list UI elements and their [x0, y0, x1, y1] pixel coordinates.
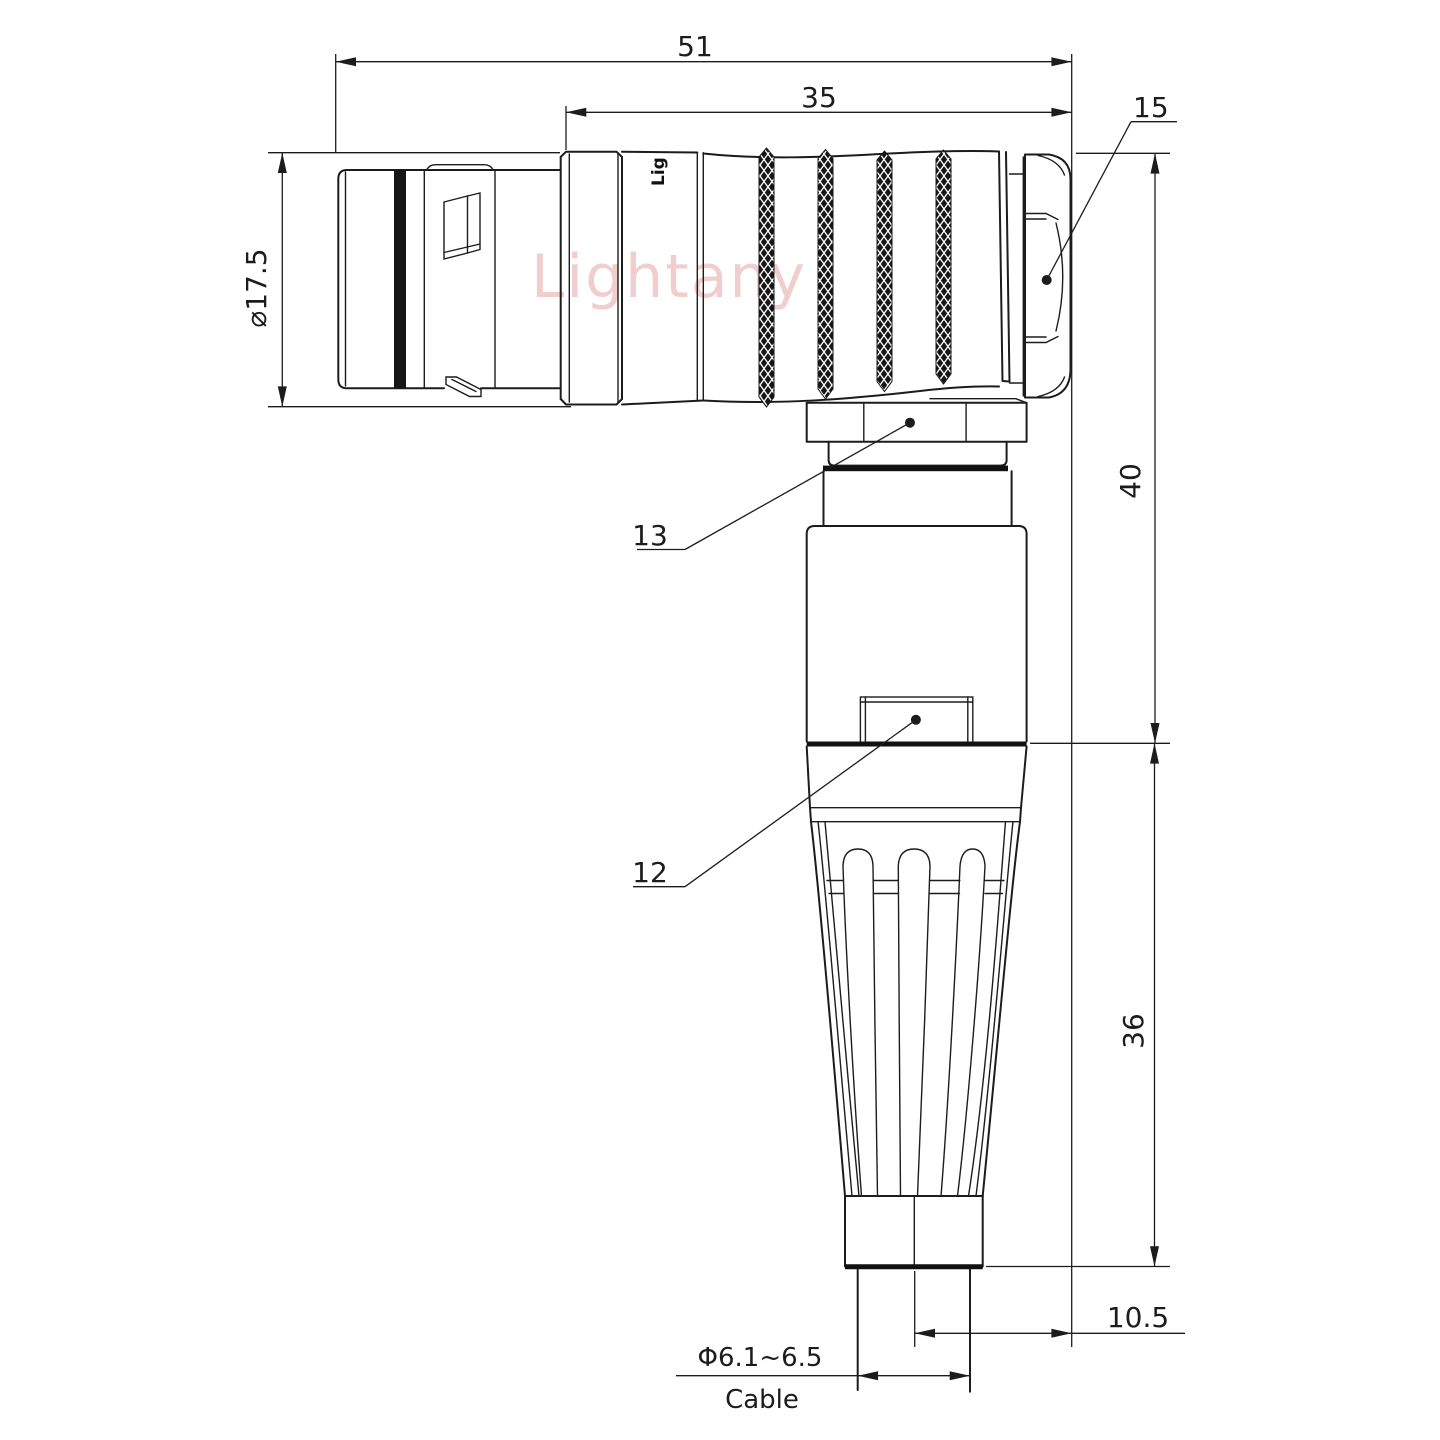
dim-36-label: 36 — [1117, 1013, 1150, 1049]
strain-relief-boot — [811, 822, 1020, 1392]
dim-cable: Φ6.1~6.5 Cable — [676, 1343, 970, 1415]
bushing — [807, 747, 1027, 822]
boot-fins — [843, 849, 985, 1196]
boot-bands — [827, 881, 1004, 894]
shell-marking: Lig — [649, 157, 669, 186]
cable-dia-label: Φ6.1~6.5 — [698, 1343, 823, 1373]
ferrule — [845, 1196, 983, 1267]
coupling-nut — [807, 399, 1027, 442]
nose-band — [394, 170, 406, 388]
technical-drawing: Lightany — [0, 0, 1440, 1440]
dim-40-label: 40 — [1114, 463, 1147, 499]
dim-15-label: 15 — [1133, 91, 1169, 124]
callout-12: 12 — [632, 715, 921, 889]
callout-13-label: 13 — [632, 519, 668, 552]
latch-slot — [444, 193, 480, 259]
cable-label: Cable — [725, 1385, 799, 1415]
back-step — [1010, 157, 1024, 396]
o-ring — [823, 466, 1008, 472]
neck — [824, 471, 1012, 526]
dia-17-5-label: ⌀17.5 — [240, 248, 273, 327]
dim-35-label: 35 — [801, 81, 837, 114]
lower-body — [807, 526, 1027, 742]
shell-top-edge — [703, 151, 999, 157]
dim-51-label: 51 — [677, 30, 713, 63]
drawing-canvas: Lightany — [0, 0, 1440, 1440]
dim-35: 35 — [566, 81, 1072, 150]
dim-40: 40 — [1076, 153, 1170, 743]
dim-10-5: 10.5 — [915, 1271, 1185, 1347]
dim-10-5-label: 10.5 — [1107, 1301, 1169, 1334]
callout-12-label: 12 — [632, 856, 668, 889]
callout-13: 13 — [632, 418, 915, 552]
latch-wedge — [446, 377, 481, 397]
shell-bottom-edge — [703, 386, 999, 402]
